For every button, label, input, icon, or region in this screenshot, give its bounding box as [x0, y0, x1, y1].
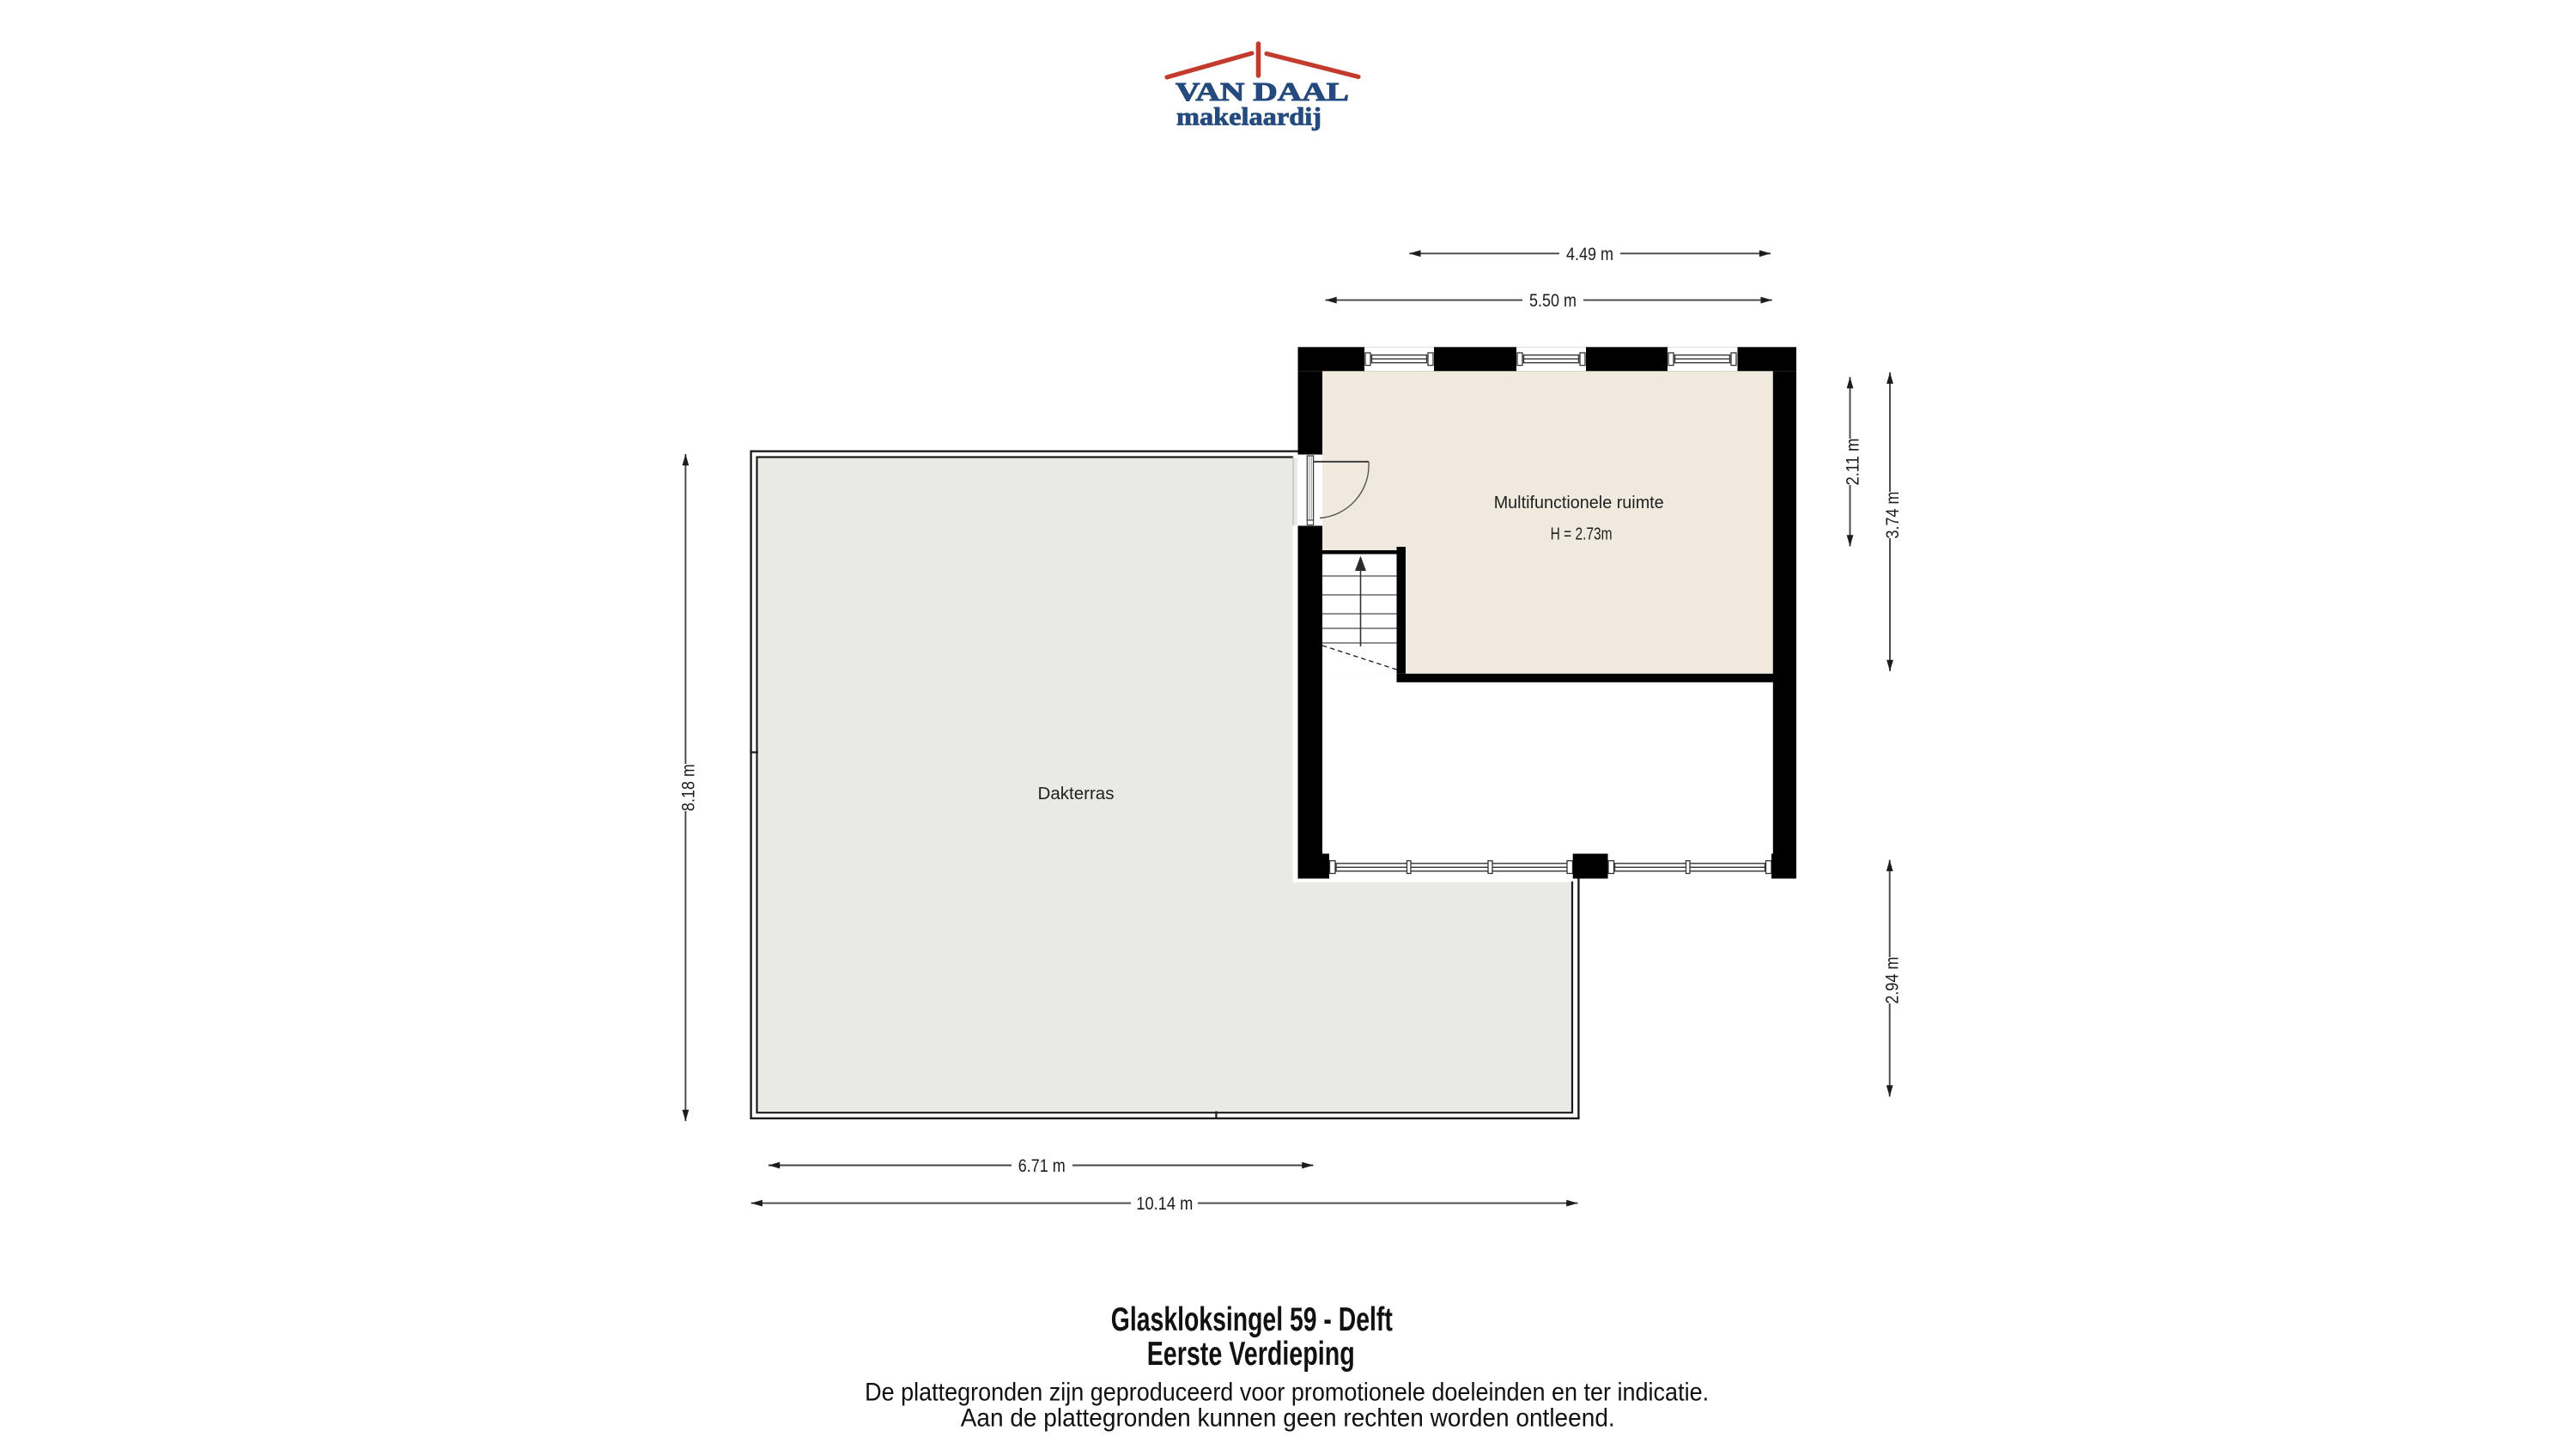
svg-text:10.14 m: 10.14 m	[1136, 1194, 1193, 1214]
svg-text:Glaskloksingel 59 - Delft: Glaskloksingel 59 - Delft	[1111, 1301, 1393, 1338]
svg-text:Eerste Verdieping: Eerste Verdieping	[1147, 1336, 1355, 1373]
svg-text:2.11 m: 2.11 m	[1844, 439, 1863, 486]
svg-text:Dakterras: Dakterras	[1038, 784, 1115, 803]
svg-text:6.71 m: 6.71 m	[1018, 1156, 1066, 1176]
svg-text:5.50 m: 5.50 m	[1529, 291, 1577, 311]
svg-text:Aan de plattegronden kunnen ge: Aan de plattegronden kunnen geen rechten…	[961, 1404, 1615, 1433]
svg-text:4.49 m: 4.49 m	[1566, 245, 1613, 264]
svg-text:De plattegronden zijn geproduc: De plattegronden zijn geproduceerd voor …	[865, 1379, 1709, 1407]
svg-text:2.94 m: 2.94 m	[1883, 957, 1903, 1004]
svg-text:3.74 m: 3.74 m	[1883, 492, 1903, 539]
svg-text:makelaardij: makelaardij	[1176, 103, 1321, 131]
svg-text:8.18 m: 8.18 m	[678, 764, 698, 811]
svg-text:Multifunctionele ruimte: Multifunctionele ruimte	[1494, 493, 1664, 512]
svg-text:H = 2.73m: H = 2.73m	[1551, 524, 1613, 544]
